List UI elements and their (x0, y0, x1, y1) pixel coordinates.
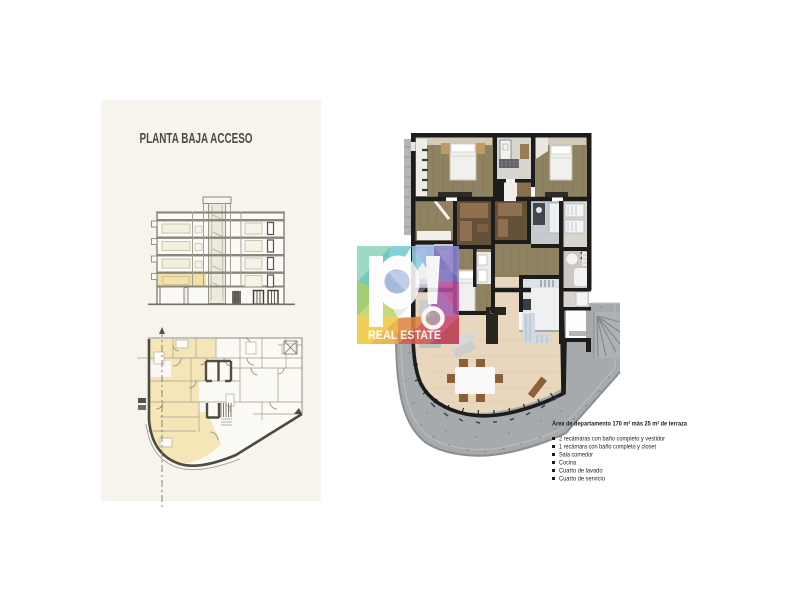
svg-text:PLANTA BAJA ACCESO: PLANTA BAJA ACCESO (140, 131, 253, 147)
svg-text:Cuarto de lavado: Cuarto de lavado (559, 469, 603, 475)
svg-text:Cuarto de servicio: Cuarto de servicio (559, 477, 606, 483)
svg-text:2 recámaras con baño completo: 2 recámaras con baño completo y vestidor (559, 437, 665, 443)
svg-text:1 recámara con baño completo y: 1 recámara con baño completo y closet (559, 445, 656, 451)
svg-text:Área de departamento 170 m² má: Área de departamento 170 m² más 25 m² de… (552, 419, 687, 428)
svg-text:Sala comedor: Sala comedor (559, 453, 593, 459)
svg-text:Cocina: Cocina (559, 461, 577, 467)
svg-text:REAL ESTATE: REAL ESTATE (368, 328, 441, 342)
